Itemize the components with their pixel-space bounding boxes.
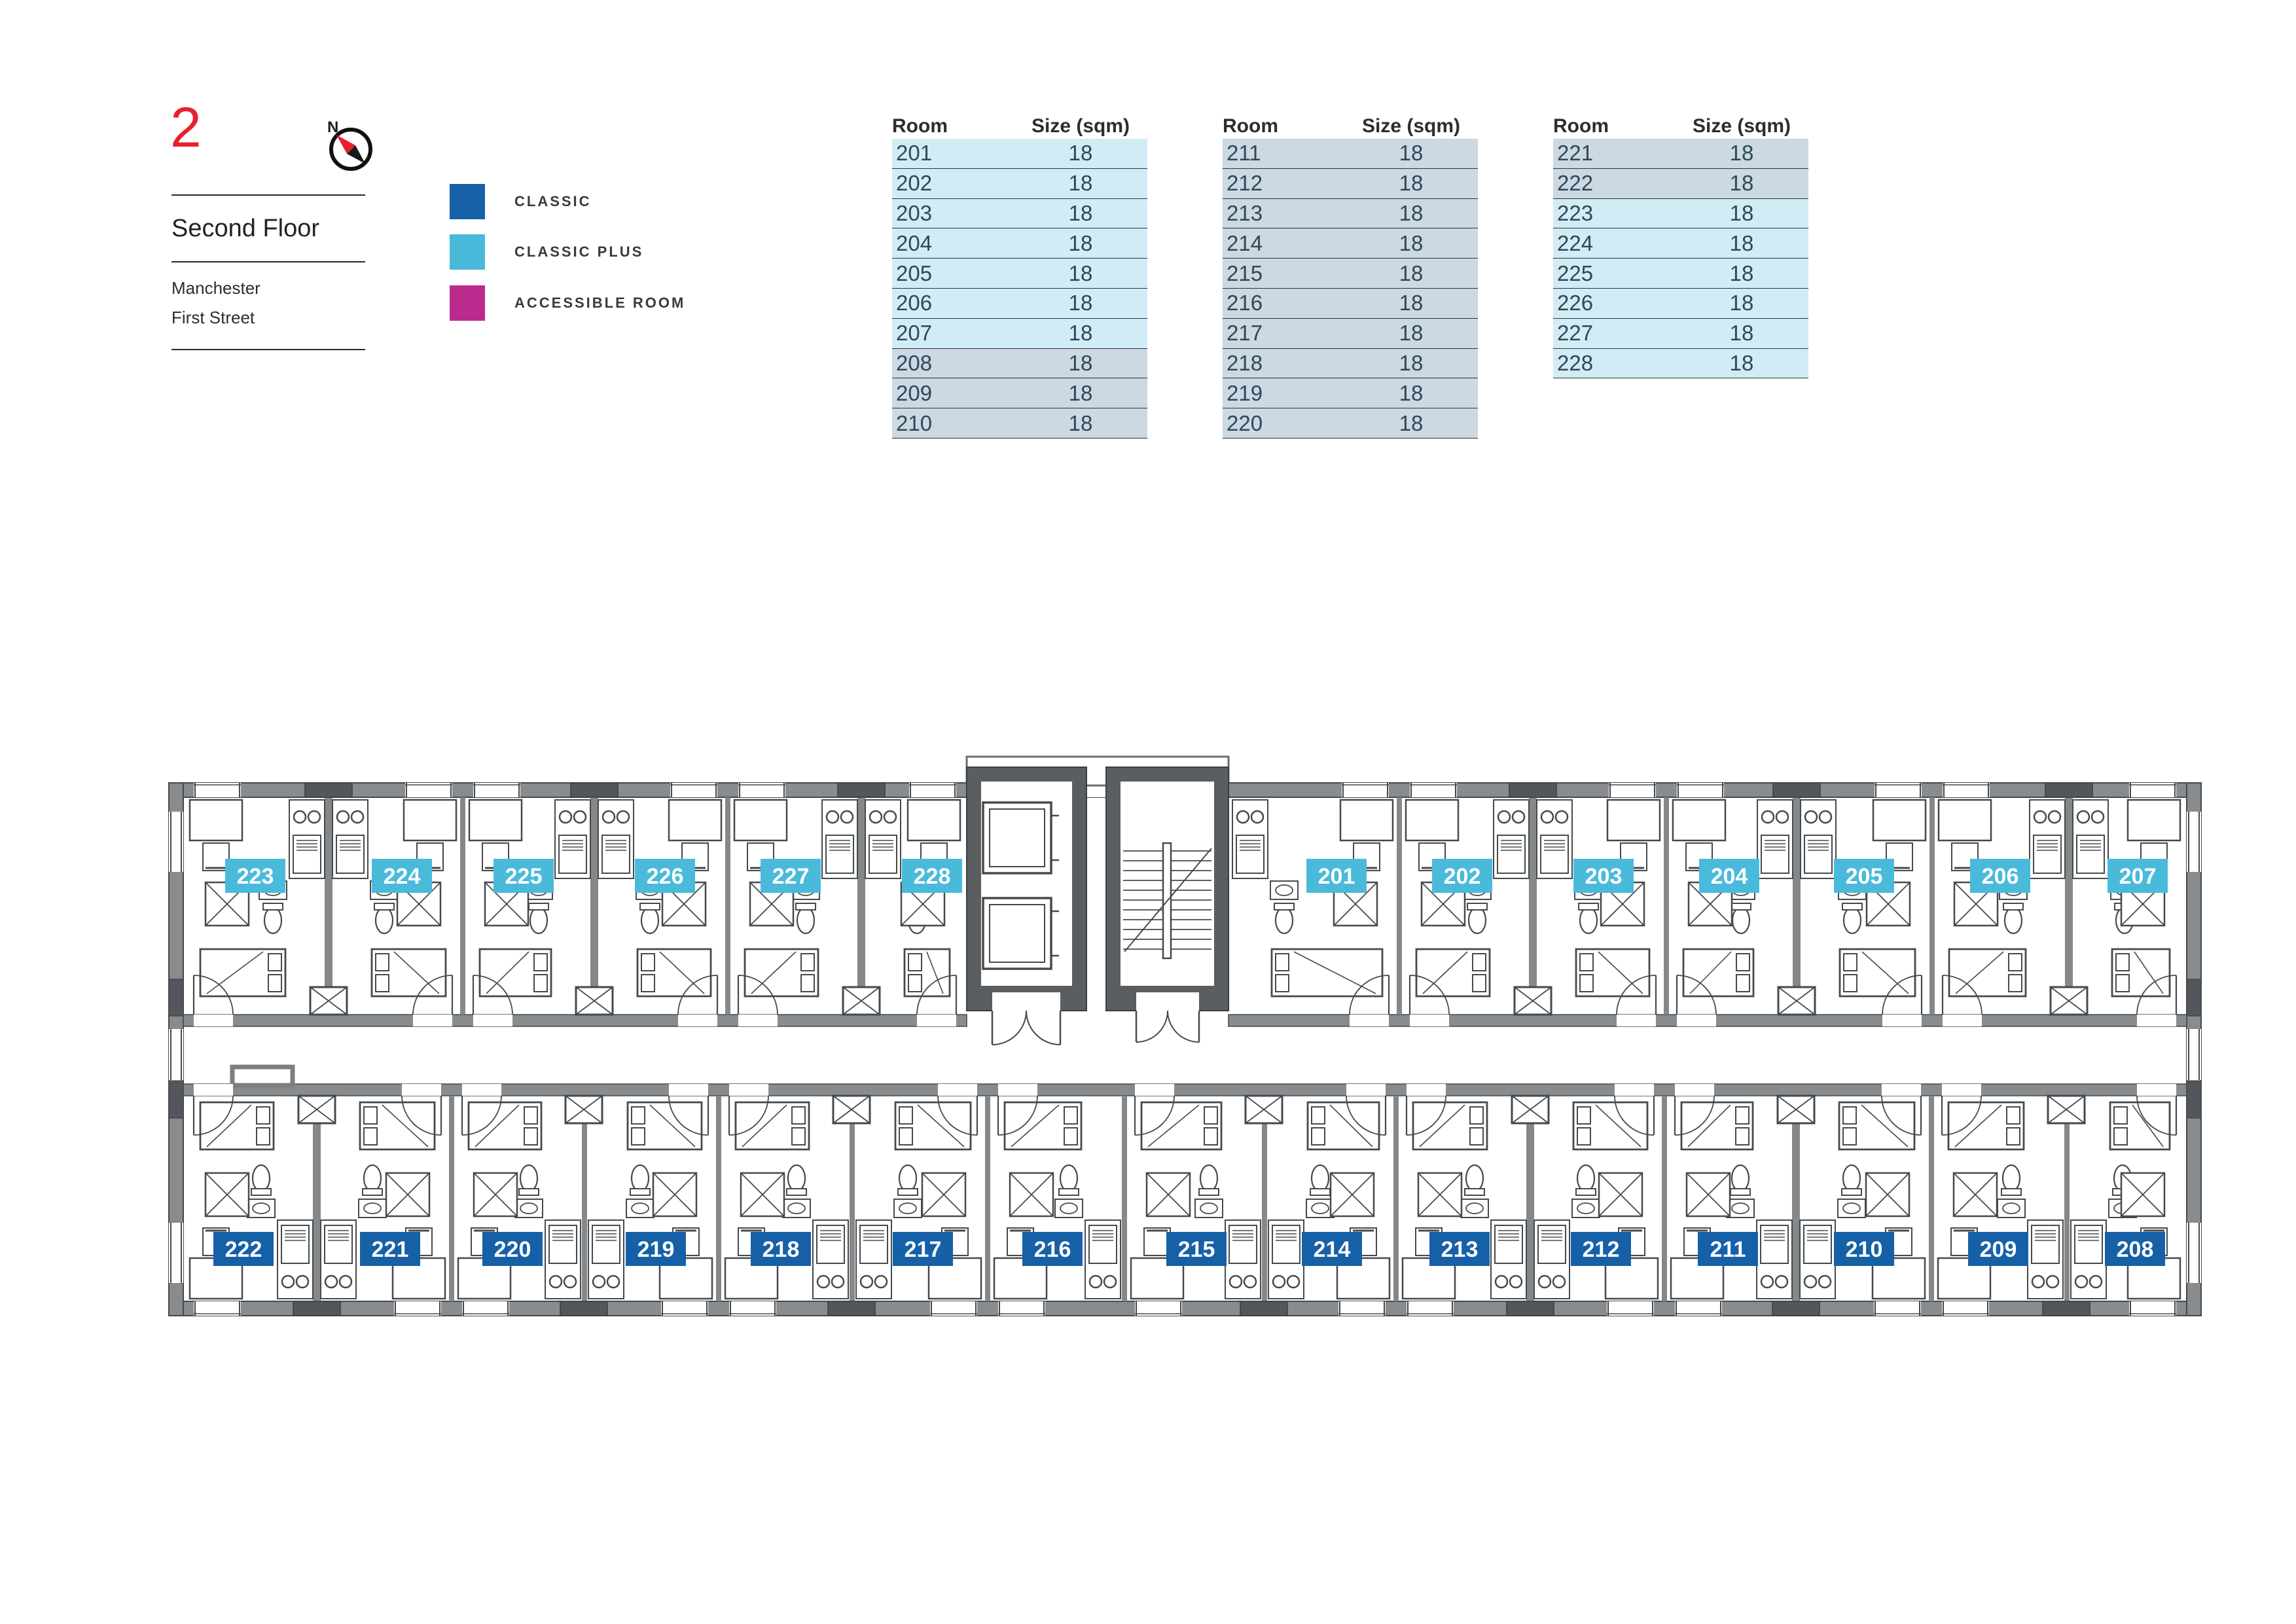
core bbox=[967, 757, 1229, 1045]
elevator-shaft bbox=[967, 767, 1086, 1045]
room-label-201: 201 bbox=[1306, 859, 1367, 893]
vent-shaft bbox=[843, 987, 880, 1015]
room-label-217: 217 bbox=[893, 1232, 953, 1266]
svg-text:213: 213 bbox=[1441, 1237, 1479, 1262]
vent-shaft bbox=[1512, 1096, 1549, 1123]
room-210 bbox=[1800, 1084, 1925, 1316]
svg-text:225: 225 bbox=[505, 864, 543, 889]
vent-shaft bbox=[1246, 1096, 1282, 1123]
svg-text:221: 221 bbox=[372, 1237, 409, 1262]
room-209 bbox=[1938, 1084, 2063, 1316]
vent-shaft bbox=[2048, 1096, 2085, 1123]
rooms-top bbox=[190, 783, 960, 1026]
room-label-209: 209 bbox=[1968, 1232, 2028, 1266]
svg-text:205: 205 bbox=[1846, 864, 1883, 889]
svg-text:207: 207 bbox=[2119, 864, 2157, 889]
room-226 bbox=[598, 783, 721, 1026]
room-label-224: 224 bbox=[372, 859, 432, 893]
vent-shaft bbox=[2051, 987, 2087, 1015]
room-202 bbox=[1406, 783, 1529, 1026]
room-207 bbox=[2073, 783, 2180, 1026]
room-211 bbox=[1671, 1084, 1792, 1316]
room-218 bbox=[725, 1084, 848, 1316]
vent-shaft bbox=[1778, 987, 1815, 1015]
room-label-213: 213 bbox=[1429, 1232, 1490, 1266]
svg-text:210: 210 bbox=[1846, 1237, 1883, 1262]
svg-text:222: 222 bbox=[225, 1237, 262, 1262]
vent-shaft bbox=[1515, 987, 1551, 1015]
vent-shaft bbox=[1778, 1096, 1814, 1123]
rooms-bottom bbox=[190, 1084, 2180, 1316]
svg-text:217: 217 bbox=[905, 1237, 942, 1262]
vent-shaft bbox=[298, 1096, 335, 1123]
corridor-duct bbox=[232, 1067, 293, 1085]
room-label-219: 219 bbox=[626, 1232, 686, 1266]
room-205 bbox=[1801, 783, 1926, 1026]
vent-shaft bbox=[310, 987, 347, 1015]
vent-shaft bbox=[833, 1096, 870, 1123]
room-label-223: 223 bbox=[225, 859, 285, 893]
room-227 bbox=[734, 783, 857, 1026]
room-217 bbox=[856, 1084, 981, 1316]
room-223 bbox=[190, 783, 325, 1026]
svg-text:226: 226 bbox=[647, 864, 684, 889]
svg-text:209: 209 bbox=[1980, 1237, 2017, 1262]
room-label-206: 206 bbox=[1970, 859, 2030, 893]
room-label-203: 203 bbox=[1573, 859, 1634, 893]
svg-text:203: 203 bbox=[1585, 864, 1623, 889]
room-label-214: 214 bbox=[1302, 1232, 1362, 1266]
room-label-222: 222 bbox=[213, 1232, 274, 1266]
room-214 bbox=[1268, 1084, 1390, 1316]
svg-text:220: 220 bbox=[494, 1237, 531, 1262]
room-label-205: 205 bbox=[1834, 859, 1894, 893]
room-208 bbox=[2071, 1084, 2180, 1316]
svg-text:216: 216 bbox=[1034, 1237, 1071, 1262]
room-219 bbox=[588, 1084, 712, 1316]
stair-shaft bbox=[1106, 767, 1229, 1042]
vent-shaft bbox=[565, 1096, 602, 1123]
svg-text:204: 204 bbox=[1711, 864, 1748, 889]
svg-text:228: 228 bbox=[914, 864, 951, 889]
room-222 bbox=[190, 1084, 313, 1316]
room-224 bbox=[332, 783, 456, 1026]
svg-text:215: 215 bbox=[1178, 1237, 1215, 1262]
floor-plan-sheet: 2 N Second Floor Manchester First Street… bbox=[0, 0, 2296, 1624]
room-label-207: 207 bbox=[2108, 859, 2168, 893]
floor-plan: 2232242252262272282012022032042052062072… bbox=[0, 0, 2296, 1624]
svg-text:227: 227 bbox=[772, 864, 810, 889]
svg-text:214: 214 bbox=[1314, 1237, 1351, 1262]
room-label-212: 212 bbox=[1571, 1232, 1631, 1266]
room-215 bbox=[1131, 1084, 1261, 1316]
room-216 bbox=[994, 1084, 1121, 1316]
room-label-218: 218 bbox=[751, 1232, 811, 1266]
room-201 bbox=[1232, 783, 1393, 1026]
svg-text:223: 223 bbox=[237, 864, 274, 889]
room-label-228: 228 bbox=[902, 859, 962, 893]
room-225 bbox=[469, 783, 590, 1026]
room-206 bbox=[1939, 783, 2065, 1026]
room-label-226: 226 bbox=[635, 859, 695, 893]
svg-text:219: 219 bbox=[637, 1237, 675, 1262]
room-label-204: 204 bbox=[1699, 859, 1759, 893]
vent-shaft bbox=[576, 987, 613, 1015]
svg-text:218: 218 bbox=[762, 1237, 800, 1262]
room-label-216: 216 bbox=[1022, 1232, 1083, 1266]
svg-text:224: 224 bbox=[384, 864, 421, 889]
svg-text:201: 201 bbox=[1318, 864, 1355, 889]
svg-text:212: 212 bbox=[1583, 1237, 1620, 1262]
room-220 bbox=[458, 1084, 581, 1316]
room-221 bbox=[321, 1084, 445, 1316]
room-label-227: 227 bbox=[761, 859, 821, 893]
room-label-221: 221 bbox=[360, 1232, 420, 1266]
room-label-202: 202 bbox=[1432, 859, 1492, 893]
room-label-211: 211 bbox=[1698, 1232, 1758, 1266]
room-label-210: 210 bbox=[1834, 1232, 1894, 1266]
room-212 bbox=[1534, 1084, 1658, 1316]
room-203 bbox=[1537, 783, 1660, 1026]
rooms-top bbox=[1232, 783, 2180, 1026]
room-label-215: 215 bbox=[1166, 1232, 1227, 1266]
room-label-208: 208 bbox=[2105, 1232, 2165, 1266]
room-213 bbox=[1403, 1084, 1526, 1316]
room-204 bbox=[1673, 783, 1793, 1026]
svg-text:211: 211 bbox=[1710, 1237, 1746, 1262]
svg-text:208: 208 bbox=[2117, 1237, 2154, 1262]
svg-text:206: 206 bbox=[1982, 864, 2019, 889]
room-label-220: 220 bbox=[482, 1232, 543, 1266]
svg-text:202: 202 bbox=[1444, 864, 1481, 889]
room-label-225: 225 bbox=[493, 859, 554, 893]
